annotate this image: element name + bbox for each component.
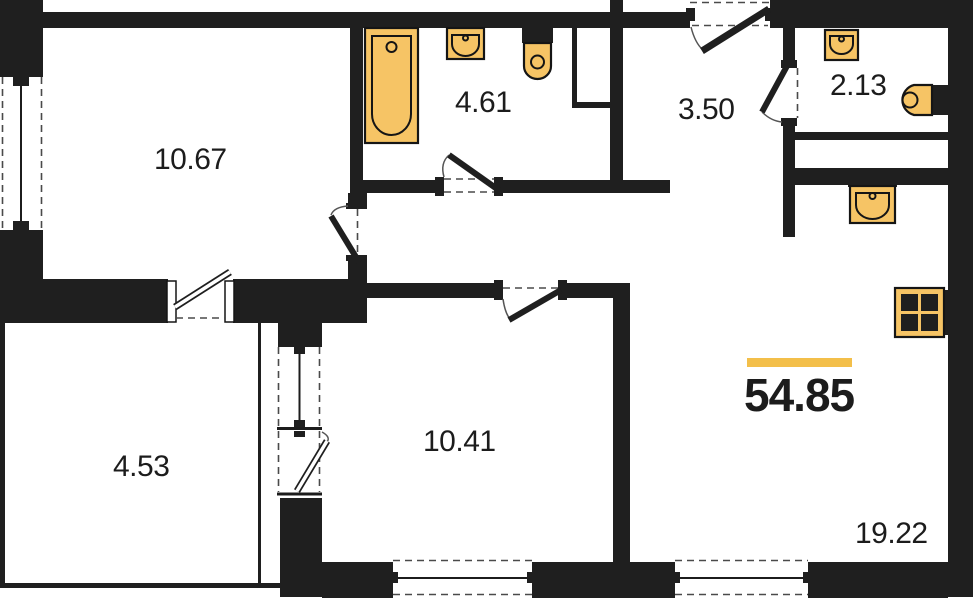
wall-segment [350,20,363,193]
wall-segment [0,230,43,323]
area-label-living-kitchen: 19.22 [855,519,928,549]
area-label-bedroom: 10.41 [423,427,496,457]
wall-segment [43,12,690,28]
window-living [663,561,820,599]
area-label-room-top-left: 10.67 [154,145,227,175]
balcony-door [167,272,234,322]
wall-segment [563,283,617,298]
area-label-hallway: 3.50 [678,95,734,125]
area-label-bathroom: 4.61 [455,88,511,118]
total-area-highlight-bar [747,358,852,367]
area-label-wc: 2.13 [830,71,886,101]
washbasin-icon [902,85,948,115]
wall-segment [258,320,261,586]
entrance-door [686,3,774,52]
balcony-partition-door [297,432,328,491]
wall-segment [0,583,281,588]
total-area-label: 54.85 [744,372,854,418]
kitchen-sink-icon [848,177,897,223]
wall-segment [770,0,948,28]
toilet-icon [522,28,553,79]
bathroom-sink-icon [447,28,484,59]
wall-segment [948,0,973,597]
wall-segment [0,323,5,588]
wall-segment [43,279,168,323]
balcony-glazing [277,347,328,494]
area-label-balcony: 4.53 [113,452,169,482]
bathroom-door [435,155,503,196]
wall-segment [350,180,435,193]
wc-door [762,60,798,126]
bathtub-icon [365,28,418,143]
wall-segment [572,28,577,104]
wall-segment [572,102,612,108]
wall-segment [542,562,663,598]
wall-segment [610,0,623,189]
wall-segment [322,562,383,598]
wall-segment [495,180,670,193]
wall-segment [613,283,630,562]
room-top-left-door [331,203,367,262]
wall-segment [233,279,367,323]
wall-segment [280,498,322,597]
wall-segment [820,562,948,598]
wc-sink-icon [825,30,858,60]
wall-segment [278,320,322,347]
wall-segment [783,20,795,62]
window-left [3,77,42,230]
wall-segment [348,283,498,298]
bedroom-door [494,280,567,320]
window-bedroom [383,561,542,599]
wall-segment [795,132,948,140]
floor-plan: 10.67 4.61 3.50 2.13 4.53 10.41 19.22 54… [0,0,979,600]
stove-icon [895,288,950,337]
wall-segment [0,0,43,77]
